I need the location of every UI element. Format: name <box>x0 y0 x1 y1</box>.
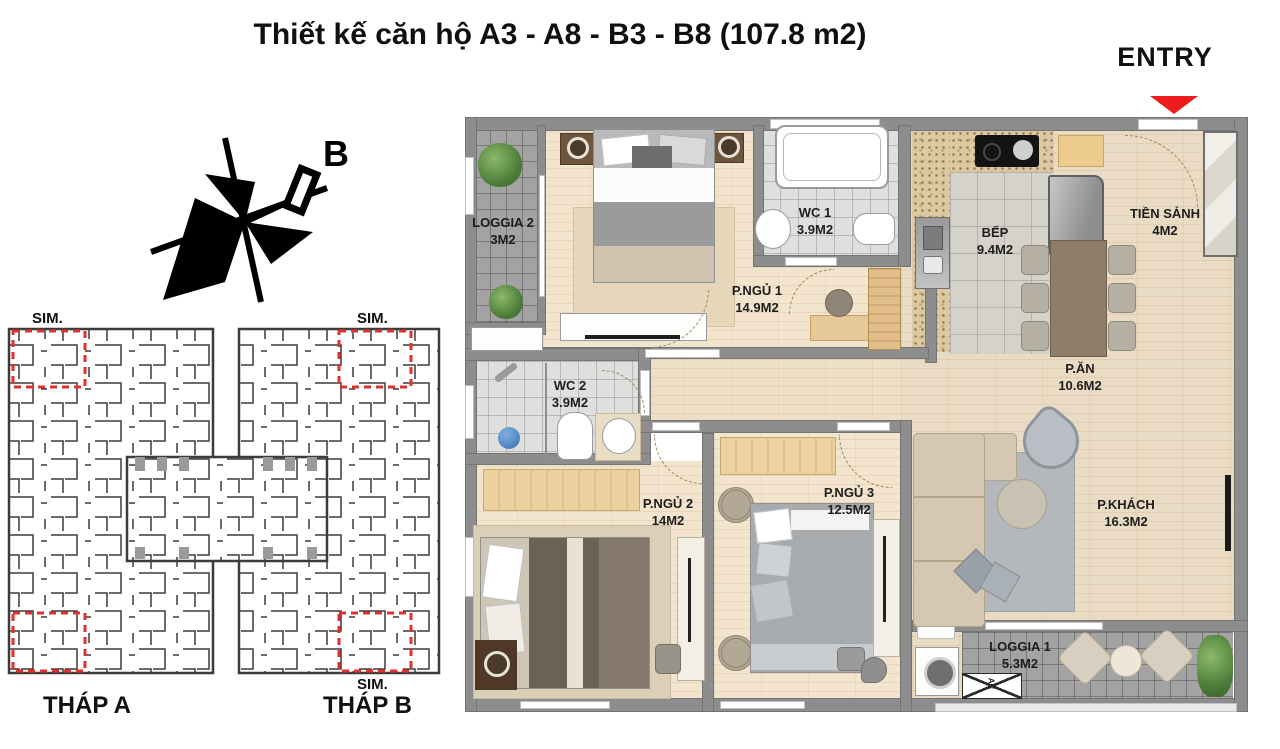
dining-chair <box>1108 283 1136 313</box>
wall-wc1-kitchen <box>898 125 911 267</box>
desk-chair <box>655 644 681 674</box>
room-name: P.NGỦ 1 <box>702 283 812 300</box>
room-name: BẾP <box>950 225 1040 242</box>
room-name: P.KHÁCH <box>1071 497 1181 514</box>
room-name: P.ĂN <box>1030 361 1130 378</box>
wardrobe <box>868 268 901 350</box>
kitchen-sink <box>915 217 950 289</box>
room-area: 3M2 <box>465 232 541 249</box>
room-area: 3.9M2 <box>770 222 860 239</box>
water-heater <box>498 427 520 449</box>
bedroom2-door-sill <box>652 422 700 431</box>
room-name: P.NGỦ 2 <box>613 496 723 513</box>
room-label-p-ngu-2: P.NGỦ 2 14M2 <box>613 496 723 530</box>
window-left-wc2 <box>465 385 474 439</box>
entry-label: ENTRY <box>1100 42 1230 73</box>
plant <box>489 285 523 319</box>
kitchen-cabinet <box>1058 135 1104 167</box>
coffee-table <box>997 479 1047 529</box>
room-area: 14.9M2 <box>702 300 812 317</box>
dining-chair <box>1021 321 1049 351</box>
lamp-icon <box>718 487 754 523</box>
room-name: LOGGIA 2 <box>465 215 541 232</box>
connector-outline <box>127 457 327 561</box>
room-area: 16.3M2 <box>1071 514 1181 531</box>
bedroom3-door-sill <box>837 422 890 431</box>
lamp-icon <box>567 137 589 159</box>
bedroom1-door-sill <box>645 349 720 358</box>
entry-opening <box>1138 119 1198 130</box>
laundry-window <box>917 625 955 639</box>
bathtub <box>775 125 889 189</box>
sofa <box>913 433 985 627</box>
window-left-loggia2 <box>465 157 474 215</box>
room-area: 10.6M2 <box>1030 378 1130 395</box>
loggia1-slider <box>985 622 1103 630</box>
entry-arrow-icon <box>1150 96 1198 114</box>
dining-table <box>1050 240 1107 357</box>
room-label-p-an: P.ĂN 10.6M2 <box>1030 361 1130 395</box>
room-name: WC 2 <box>525 378 615 395</box>
bedroom2-desk <box>677 537 705 681</box>
room-label-p-khach: P.KHÁCH 16.3M2 <box>1071 497 1181 531</box>
floorplan-page: { "title": "Thiết kế căn hộ A3 - A8 - B3… <box>0 0 1280 749</box>
page-title: Thiết kế căn hộ A3 - A8 - B3 - B8 (107.8… <box>150 18 970 52</box>
room-label-p-ngu-3: P.NGỦ 3 12.5M2 <box>794 485 904 519</box>
ac-label: AC <box>986 678 995 690</box>
loggia1-rail <box>935 703 1237 712</box>
lamp-icon <box>718 136 740 158</box>
room-label-wc-2: WC 2 3.9M2 <box>525 378 615 412</box>
room-label-loggia-2: LOGGIA 2 3M2 <box>465 215 541 249</box>
room-label-wc-1: WC 1 3.9M2 <box>770 205 860 239</box>
ac-unit: AC <box>962 673 1022 699</box>
room-label-tien-sanh: TIỀN SẢNH 4M2 <box>1105 206 1225 240</box>
bed-1 <box>593 129 715 283</box>
loggia-table <box>1110 645 1142 677</box>
bedroom3-wardrobe <box>720 437 836 475</box>
lamp-icon <box>484 651 510 677</box>
tower-a-label: THÁP A <box>43 691 131 717</box>
room-area: 9.4M2 <box>950 242 1040 259</box>
tv-icon <box>1225 475 1231 551</box>
room-area: 12.5M2 <box>794 502 904 519</box>
desk-chair <box>861 657 887 683</box>
window-bottom-bed2 <box>520 701 610 709</box>
dining-chair <box>1108 245 1136 275</box>
site-key-plan: SIM. SIM. SIM. THÁP A THÁP B <box>5 305 447 717</box>
compass-north-icon: B <box>145 132 350 317</box>
room-label-bep: BẾP 9.4M2 <box>950 225 1040 259</box>
tower-b-label: THÁP B <box>323 691 412 717</box>
dining-chair <box>1108 321 1136 351</box>
wc1-door-sill <box>785 257 837 266</box>
wc2-sink <box>602 418 636 454</box>
room-area: 5.3M2 <box>970 656 1070 673</box>
room-area: 4M2 <box>1105 223 1225 240</box>
washing-machine <box>915 647 959 696</box>
plant <box>1197 635 1233 697</box>
room-name: WC 1 <box>770 205 860 222</box>
wc2-toilet <box>557 412 593 460</box>
room-name: P.NGỦ 3 <box>794 485 904 502</box>
compass-b-label: B <box>323 133 349 174</box>
wall-bed3-living <box>900 420 912 712</box>
bedroom3-desk <box>873 519 900 657</box>
room-name: LOGGIA 1 <box>970 639 1070 656</box>
lamp-icon <box>718 635 754 671</box>
apartment-plan: AC LOGGIA 2 3M2 P.NGỦ 1 14.9M2 WC 1 3.9M… <box>465 117 1248 712</box>
sim-label-bottom-right: SIM. <box>357 676 388 693</box>
room-name: TIỀN SẢNH <box>1105 206 1225 223</box>
desk <box>810 315 872 341</box>
plant <box>478 143 522 187</box>
window-bottom-bed3 <box>720 701 805 709</box>
dining-chair <box>1021 283 1049 313</box>
room-label-loggia-1: LOGGIA 1 5.3M2 <box>970 639 1070 673</box>
room-area: 3.9M2 <box>525 395 615 412</box>
sim-label-top-right: SIM. <box>357 310 388 327</box>
loggia2-cabinet <box>471 327 543 351</box>
room-label-p-ngu-1: P.NGỦ 1 14.9M2 <box>702 283 812 317</box>
sim-label-top-left: SIM. <box>32 310 63 327</box>
cooktop <box>975 135 1039 167</box>
room-area: 14M2 <box>613 513 723 530</box>
